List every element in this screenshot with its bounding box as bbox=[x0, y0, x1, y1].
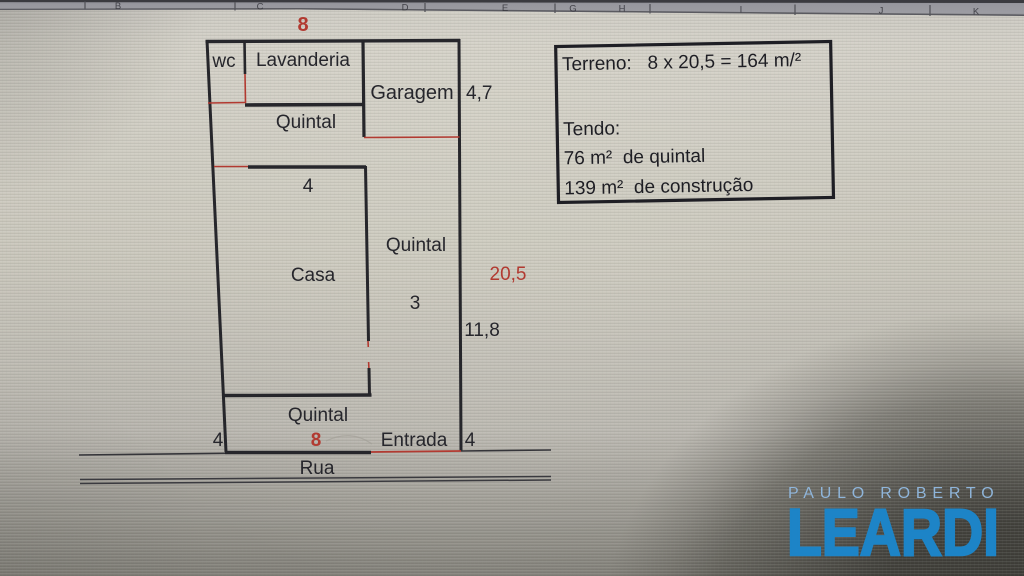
svg-text:8: 8 bbox=[311, 430, 322, 451]
svg-text:B: B bbox=[115, 1, 121, 12]
svg-text:Rua: Rua bbox=[300, 458, 335, 479]
svg-text:4: 4 bbox=[213, 430, 224, 451]
svg-text:Casa: Casa bbox=[291, 265, 336, 286]
svg-text:Garagem: Garagem bbox=[370, 82, 453, 104]
svg-text:J: J bbox=[879, 6, 884, 17]
svg-text:G: G bbox=[569, 4, 576, 15]
svg-text:Terreno: 8 x 20,5 = 164 m/²: Terreno: 8 x 20,5 = 164 m/² bbox=[562, 50, 802, 75]
svg-text:K: K bbox=[973, 7, 980, 18]
svg-text:11,8: 11,8 bbox=[464, 320, 500, 341]
svg-text:Lavanderia: Lavanderia bbox=[256, 50, 350, 71]
svg-text:D: D bbox=[402, 3, 409, 14]
svg-text:4,7: 4,7 bbox=[466, 83, 492, 104]
svg-text:C: C bbox=[257, 2, 264, 13]
svg-text:Tendo:: Tendo: bbox=[563, 118, 620, 140]
svg-text:LEARDI: LEARDI bbox=[787, 495, 999, 569]
svg-text:20,5: 20,5 bbox=[490, 264, 527, 285]
svg-text:4: 4 bbox=[303, 176, 314, 197]
svg-text:Quintal: Quintal bbox=[276, 112, 336, 133]
svg-text:76 m² de quintal: 76 m² de quintal bbox=[564, 146, 706, 170]
svg-text:8: 8 bbox=[297, 14, 308, 36]
svg-text:E: E bbox=[502, 3, 508, 14]
svg-text:I: I bbox=[740, 5, 743, 16]
svg-text:3: 3 bbox=[410, 293, 421, 314]
svg-text:wc: wc bbox=[211, 51, 235, 72]
svg-text:Entrada: Entrada bbox=[381, 430, 448, 451]
svg-text:H: H bbox=[619, 4, 626, 15]
svg-text:Quintal: Quintal bbox=[386, 235, 446, 256]
svg-text:4: 4 bbox=[465, 430, 476, 451]
svg-text:139 m² de construção: 139 m² de construção bbox=[564, 175, 753, 199]
svg-text:Quintal: Quintal bbox=[288, 405, 348, 426]
